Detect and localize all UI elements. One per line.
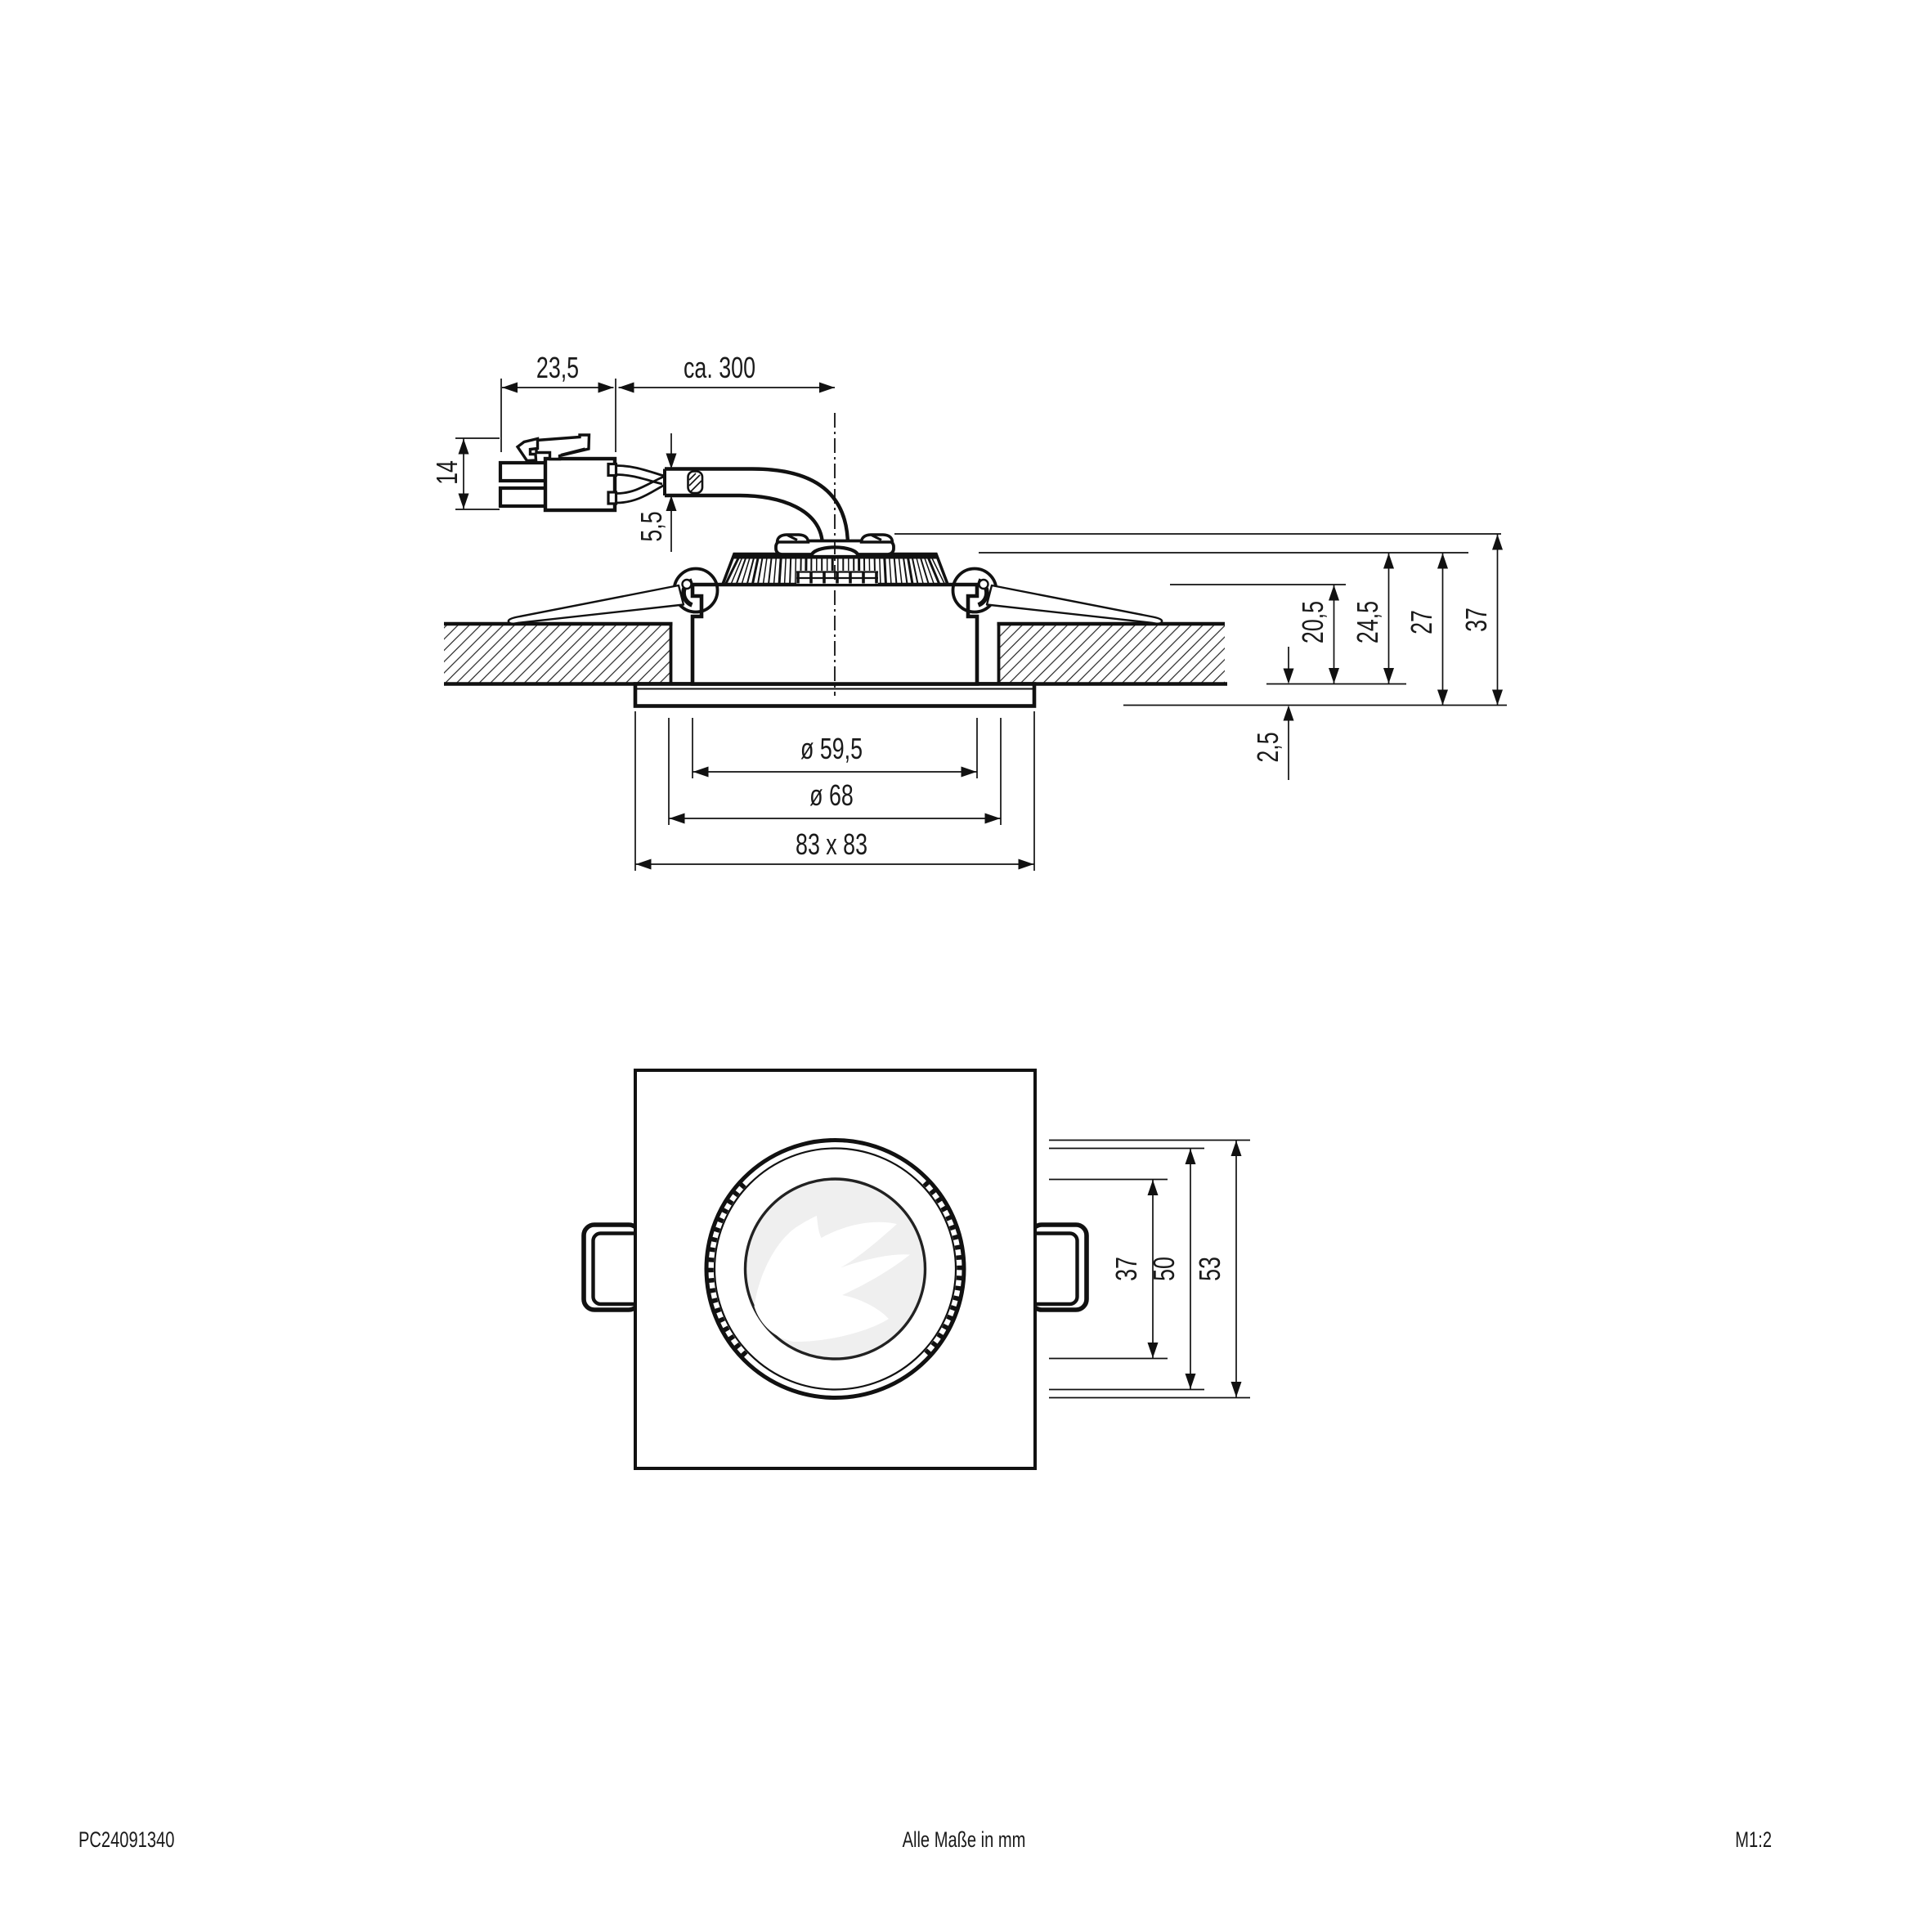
svg-text:24,5: 24,5: [1351, 601, 1384, 643]
svg-text:ca. 300: ca. 300: [684, 351, 755, 384]
svg-text:20,5: 20,5: [1296, 601, 1329, 643]
svg-text:ø 68: ø 68: [809, 778, 854, 812]
svg-text:37: 37: [1459, 607, 1493, 632]
svg-text:83 x 83: 83 x 83: [796, 827, 867, 861]
svg-text:23,5: 23,5: [536, 351, 579, 384]
svg-text:M1:2: M1:2: [1735, 1827, 1772, 1853]
svg-text:Alle Maße in mm: Alle Maße in mm: [903, 1827, 1026, 1853]
svg-text:37: 37: [1109, 1257, 1143, 1281]
svg-text:PC24091340: PC24091340: [78, 1827, 174, 1853]
svg-text:5,5: 5,5: [634, 511, 668, 541]
svg-text:2,5: 2,5: [1251, 732, 1284, 762]
svg-text:14: 14: [430, 460, 464, 485]
svg-text:50: 50: [1147, 1257, 1181, 1281]
svg-text:53: 53: [1193, 1257, 1226, 1281]
svg-text:ø 59,5: ø 59,5: [800, 732, 863, 765]
svg-text:27: 27: [1405, 610, 1438, 634]
